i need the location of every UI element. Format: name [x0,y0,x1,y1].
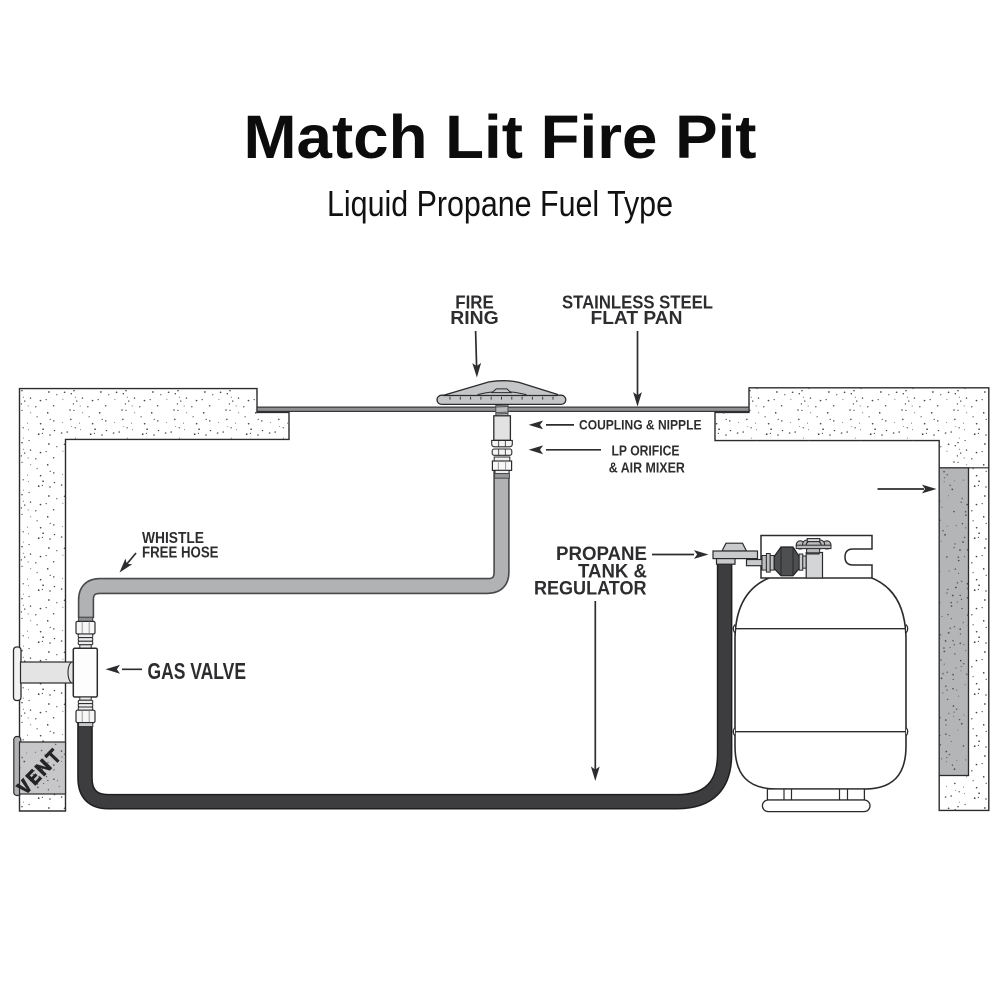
svg-text:& AIR MIXER: & AIR MIXER [609,460,685,476]
svg-text:COUPLING & NIPPLE: COUPLING & NIPPLE [579,416,702,432]
svg-text:RING: RING [450,307,499,328]
svg-text:LP ORIFICE: LP ORIFICE [612,443,680,459]
svg-text:FREE HOSE: FREE HOSE [142,545,219,562]
svg-text:FLAT PAN: FLAT PAN [591,307,683,328]
svg-text:GAS VALVE: GAS VALVE [148,658,247,684]
svg-text:Liquid Propane Fuel Type: Liquid Propane Fuel Type [327,183,673,224]
svg-text:REGULATOR: REGULATOR [534,578,647,600]
svg-text:Match Lit Fire Pit: Match Lit Fire Pit [244,103,757,171]
